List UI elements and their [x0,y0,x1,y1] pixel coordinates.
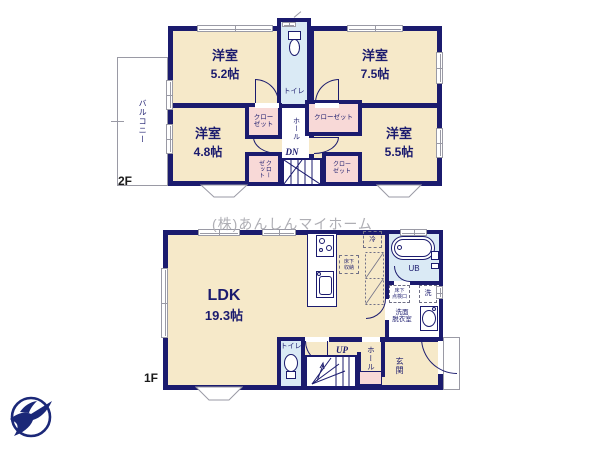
sink-tap-icon [317,272,321,276]
hall-2f-label: ホール [291,117,299,141]
dn-label: DN [278,147,306,157]
window [347,25,403,32]
closet-label: クロー ゼット [333,162,351,176]
stairs-1f [305,355,357,388]
window [197,25,273,32]
room-label-75: 洋室 7.5帖 [328,49,422,82]
underfloor-storage-label: 床下 収納 [344,259,354,271]
washroom-label: 洗面 脱衣室 [387,309,417,324]
room-size: 5.5帖 [356,146,442,160]
window [282,22,296,27]
up-label: UP [330,345,354,355]
toilet-base-icon [286,371,296,379]
window [400,229,427,236]
stairs-up-icon [307,357,355,386]
balcony: バルコニー [117,57,168,186]
closet-label: クロー ゼット [254,114,274,129]
room-label-55: 洋室 5.5帖 [356,127,442,160]
bay-window [200,184,248,198]
room-name: 洋室 [165,127,251,142]
pantry-shelf [365,252,384,305]
washer-label: 洗 [425,290,432,298]
room-name: 洋室 [356,127,442,142]
vent-tick [294,11,302,18]
watermark: (株)あんしんマイホーム [212,214,373,234]
company-logo-icon [6,388,58,444]
stove-burner-icon [319,248,323,252]
toilet-1f-label: トイレ [277,343,305,351]
underfloor-hatch-box: 床下 点検口 [389,285,410,303]
fridge-label: 冷 [369,236,376,243]
balcony-door [166,80,173,110]
hall-1f-label: ホール [366,346,375,372]
ldk-label: LDK 19.3帖 [189,287,259,324]
washbasin-bowl-icon [422,310,436,327]
toilet-bowl-icon [289,39,300,56]
washbasin-tap-icon [432,307,436,311]
room-label-48: 洋室 4.8帖 [165,127,251,160]
room-label-52: 洋室 5.2帖 [178,49,272,82]
bay-window [195,386,243,401]
window [161,268,168,338]
closet-label: クローゼット [314,114,353,121]
stove-burner-icon [326,245,332,251]
balcony-railing-tick [111,121,124,122]
stairs-dn-icon [284,160,320,184]
bay-window [376,184,422,198]
bathtub-drain-icon [397,245,402,250]
shoe-cabinet [359,371,382,385]
toilet-2f-label: トイレ [277,88,311,96]
sink-basin-icon [319,276,332,295]
room-size: 4.8帖 [165,146,251,160]
floor1-label: 1F [144,371,158,385]
balcony-door [166,124,173,154]
door-gap [315,103,339,108]
door-gap [255,103,279,108]
entrance-label: 玄関 [395,357,404,375]
washer-box: 洗 [419,285,437,303]
room-name: 洋室 [328,49,422,64]
closet-label: クロー ゼット [257,160,271,178]
underfloor-storage-box: 床下 収納 [339,255,359,274]
underfloor-hatch-label: 床下 点検口 [392,288,407,300]
floorplan-canvas: バルコニー ホール DN トイレ クロー ゼット クローゼット クロー ゼ [0,0,600,449]
floor2-label: 2F [118,174,132,188]
ldk-size: 19.3帖 [189,309,259,324]
room-size: 7.5帖 [328,68,422,82]
window [436,52,443,84]
ldk-name: LDK [189,287,259,305]
stairs-2f [282,158,322,186]
window [436,128,443,158]
room-name: 洋室 [178,49,272,64]
stove-burner-icon [319,238,325,244]
window [436,286,443,299]
bath-shelf-icon [431,251,439,260]
toilet-bowl-icon [284,354,298,372]
balcony-label: バルコニー [138,99,147,144]
